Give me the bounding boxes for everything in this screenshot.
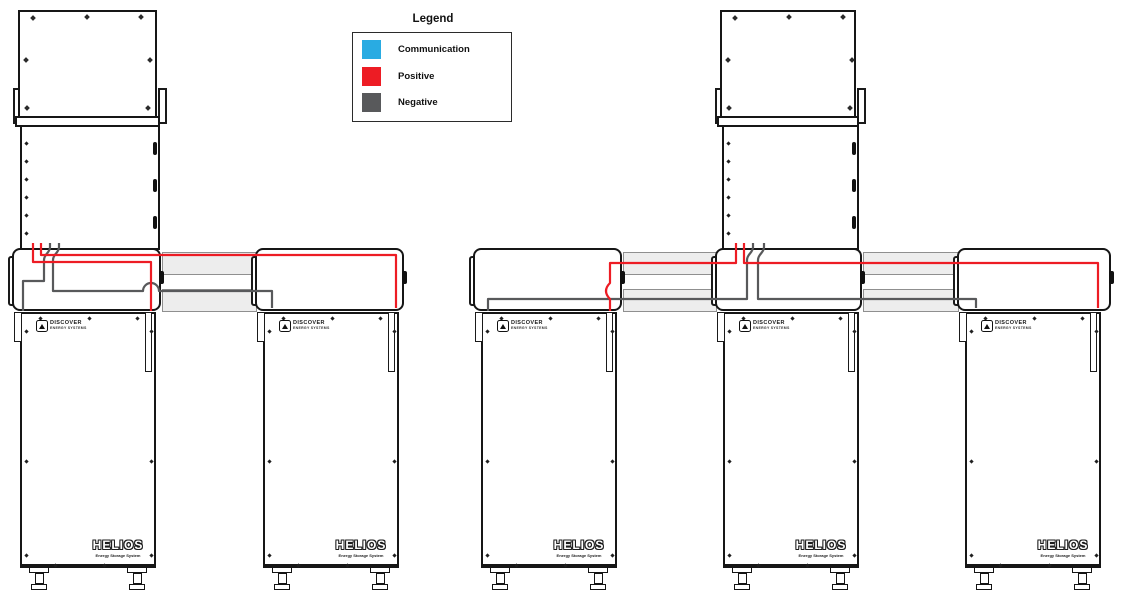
leveling-foot-base (31, 584, 47, 590)
leveling-foot-base (832, 584, 848, 590)
helios-logo: HELIOSEnergy Storage System (547, 538, 611, 558)
cable-tray-lower (623, 289, 717, 312)
leveling-foot-stem (133, 573, 142, 584)
discover-triangle-icon (282, 324, 288, 329)
battery-2-cabinet (263, 312, 399, 568)
helios-logo: HELIOSEnergy Storage System (789, 538, 853, 558)
helios-tagline: Energy Storage System (329, 553, 393, 558)
leveling-foot-base (976, 584, 992, 590)
discover-logo: DISCOVERENERGY SYSTEMS (981, 320, 1032, 332)
discover-logo: DISCOVERENERGY SYSTEMS (497, 320, 548, 332)
discover-logo: DISCOVERENERGY SYSTEMS (279, 320, 330, 332)
battery-5-left-bracket (959, 312, 967, 342)
battery-3-top-cover (473, 248, 622, 311)
discover-tagline: ENERGY SYSTEMS (50, 326, 87, 330)
discover-logo: DISCOVERENERGY SYSTEMS (36, 320, 87, 332)
inverter-2-hinge-nub (852, 179, 856, 192)
discover-triangle-icon (39, 324, 45, 329)
leveling-foot-base (734, 584, 750, 590)
discover-triangle-icon (500, 324, 506, 329)
discover-tagline: ENERGY SYSTEMS (511, 326, 548, 330)
battery-4-left-bracket (717, 312, 725, 342)
discover-icon (497, 320, 509, 332)
leveling-foot-base (590, 584, 606, 590)
discover-triangle-icon (742, 324, 748, 329)
leveling-foot-stem (594, 573, 603, 584)
battery-1-left-bracket (14, 312, 22, 342)
leveling-foot-stem (278, 573, 287, 584)
leveling-foot-stem (738, 573, 747, 584)
battery-4-cabinet (723, 312, 859, 568)
discover-tagline: ENERGY SYSTEMS (753, 326, 790, 330)
helios-logo: HELIOSEnergy Storage System (86, 538, 150, 558)
communication-color-swatch (362, 40, 381, 59)
battery-2-left-bracket (257, 312, 265, 342)
battery-5-right-bracket (1090, 312, 1097, 372)
helios-name: HELIOS (86, 538, 150, 552)
cable-tray-upper (162, 252, 257, 275)
leveling-foot-stem (980, 573, 989, 584)
leveling-foot-base (1074, 584, 1090, 590)
legend-row-negative: Negative (362, 93, 511, 112)
battery-2-top-cover (255, 248, 404, 311)
battery-5-connector-nub (1109, 271, 1114, 284)
battery-3-cabinet (481, 312, 617, 568)
legend-row-positive: Positive (362, 67, 511, 86)
legend-label-positive: Positive (398, 71, 434, 82)
battery-2-connector-nub (402, 271, 407, 284)
legend-label-communication: Communication (398, 44, 470, 55)
leveling-foot-base (492, 584, 508, 590)
helios-name: HELIOS (789, 538, 853, 552)
leveling-foot-stem (496, 573, 505, 584)
inverter-1-hinge-nub (153, 216, 157, 229)
discover-icon (739, 320, 751, 332)
helios-logo: HELIOSEnergy Storage System (329, 538, 393, 558)
battery-1-cabinet (20, 312, 156, 568)
cable-tray-upper (863, 252, 959, 275)
helios-name: HELIOS (329, 538, 393, 552)
negative-color-swatch (362, 93, 381, 112)
discover-tagline: ENERGY SYSTEMS (995, 326, 1032, 330)
inverter-1-bottom-bar (15, 116, 160, 127)
leveling-foot-stem (1078, 573, 1087, 584)
battery-4-top-cover (715, 248, 862, 311)
discover-tagline: ENERGY SYSTEMS (293, 326, 330, 330)
helios-logo: HELIOSEnergy Storage System (1031, 538, 1095, 558)
discover-logo: DISCOVERENERGY SYSTEMS (739, 320, 790, 332)
cable-tray-lower (863, 289, 959, 312)
inverter-1-lower-chase (20, 124, 160, 250)
leveling-foot-base (129, 584, 145, 590)
battery-2-right-bracket (388, 312, 395, 372)
inverter-2-hinge-nub (852, 142, 856, 155)
inverter-2-lower-chase (722, 124, 859, 250)
battery-1-top-cover (12, 248, 161, 311)
helios-tagline: Energy Storage System (1031, 553, 1095, 558)
battery-5-cabinet (965, 312, 1101, 568)
helios-tagline: Energy Storage System (86, 553, 150, 558)
helios-name: HELIOS (1031, 538, 1095, 552)
battery-3-left-bracket (475, 312, 483, 342)
leveling-foot-stem (836, 573, 845, 584)
inverter-1 (18, 10, 157, 118)
inverter-1-hinge-nub (153, 179, 157, 192)
cable-tray-lower (162, 289, 257, 312)
positive-color-swatch (362, 67, 381, 86)
inverter-2-hinge-nub (852, 216, 856, 229)
legend-row-communication: Communication (362, 40, 511, 59)
inverter-2-bottom-bar (717, 116, 859, 127)
inverter-2 (720, 10, 856, 118)
discover-icon (279, 320, 291, 332)
battery-4-connector-nub (860, 271, 865, 284)
battery-1-connector-nub (159, 271, 164, 284)
inverter-1-hinge-nub (153, 142, 157, 155)
legend: Legend Communication Positive Negative (352, 13, 514, 122)
helios-name: HELIOS (547, 538, 611, 552)
battery-5-top-cover (957, 248, 1111, 311)
discover-icon (36, 320, 48, 332)
leveling-foot-base (372, 584, 388, 590)
leveling-foot-stem (376, 573, 385, 584)
helios-tagline: Energy Storage System (547, 553, 611, 558)
leveling-foot-stem (35, 573, 44, 584)
leveling-foot-base (274, 584, 290, 590)
discover-icon (981, 320, 993, 332)
battery-4-right-bracket (848, 312, 855, 372)
helios-tagline: Energy Storage System (789, 553, 853, 558)
cable-tray-upper (623, 252, 717, 275)
battery-3-connector-nub (620, 271, 625, 284)
battery-3-right-bracket (606, 312, 613, 372)
battery-1-right-bracket (145, 312, 152, 372)
discover-triangle-icon (984, 324, 990, 329)
legend-label-negative: Negative (398, 97, 438, 108)
legend-box: Communication Positive Negative (352, 32, 512, 122)
wiring-diagram: Legend Communication Positive Negative (0, 0, 1137, 603)
legend-title: Legend (352, 13, 514, 25)
